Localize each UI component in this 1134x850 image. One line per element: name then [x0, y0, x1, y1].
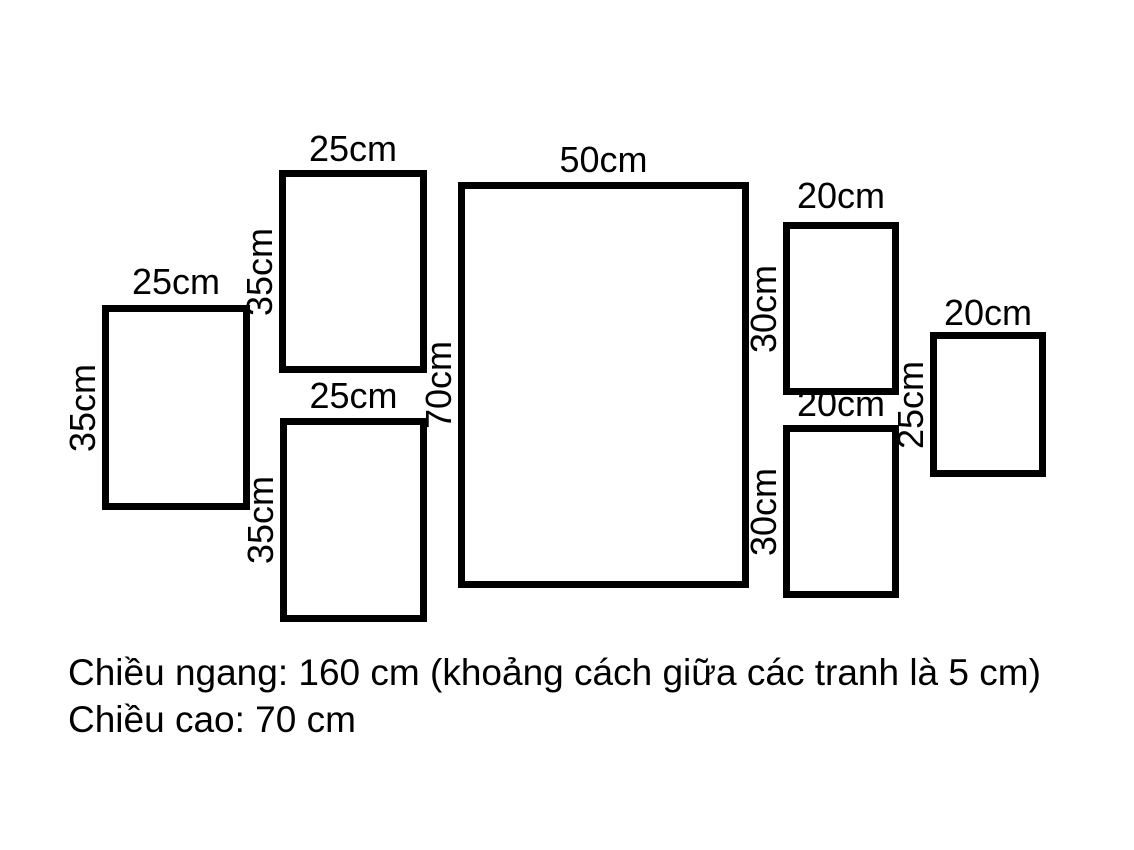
caption-vertical-dimension: Chiều cao: 70 cm: [68, 696, 1041, 743]
middle-bottom-frame-height-text: 35cm: [242, 476, 280, 564]
left-frame-height-label: 35cm: [64, 305, 102, 510]
right-bottom-frame: [783, 425, 899, 598]
middle-top-frame-width-label: 25cm: [279, 130, 427, 168]
right-top-frame-height-label: 30cm: [745, 222, 783, 395]
right-bottom-frame-height-label: 30cm: [745, 425, 783, 598]
caption-horizontal-dimension: Chiều ngang: 160 cm (khoảng cách giữa cá…: [68, 649, 1041, 696]
far-right-frame-width-label: 20cm: [930, 294, 1046, 332]
left-frame: [102, 305, 250, 510]
far-right-frame: [930, 332, 1046, 477]
right-top-frame-width-label: 20cm: [783, 177, 899, 215]
middle-top-frame-height-label: 35cm: [241, 170, 279, 373]
right-top-frame: [783, 222, 899, 395]
right-bottom-frame-height-text: 30cm: [745, 467, 783, 555]
middle-bottom-frame-height-label: 35cm: [242, 418, 280, 622]
center-frame: [458, 182, 749, 588]
right-bottom-frame-width-label: 20cm: [783, 385, 899, 423]
dimensions-caption: Chiều ngang: 160 cm (khoảng cách giữa cá…: [68, 649, 1041, 743]
center-frame-height-text: 70cm: [420, 341, 458, 429]
middle-bottom-frame: [280, 418, 427, 622]
middle-top-frame: [279, 170, 427, 373]
far-right-frame-height-label: 25cm: [892, 332, 930, 477]
left-frame-width-label: 25cm: [102, 263, 250, 301]
center-frame-height-label: 70cm: [420, 182, 458, 588]
far-right-frame-height-text: 25cm: [892, 360, 930, 448]
gallery-wall-diagram: 25cm 35cm 25cm 35cm 25cm 35cm 50cm 70cm …: [0, 0, 1134, 850]
middle-bottom-frame-width-label: 25cm: [280, 377, 427, 415]
left-frame-height-text: 35cm: [64, 363, 102, 451]
middle-top-frame-height-text: 35cm: [241, 227, 279, 315]
right-top-frame-height-text: 30cm: [745, 264, 783, 352]
center-frame-width-label: 50cm: [458, 141, 749, 179]
